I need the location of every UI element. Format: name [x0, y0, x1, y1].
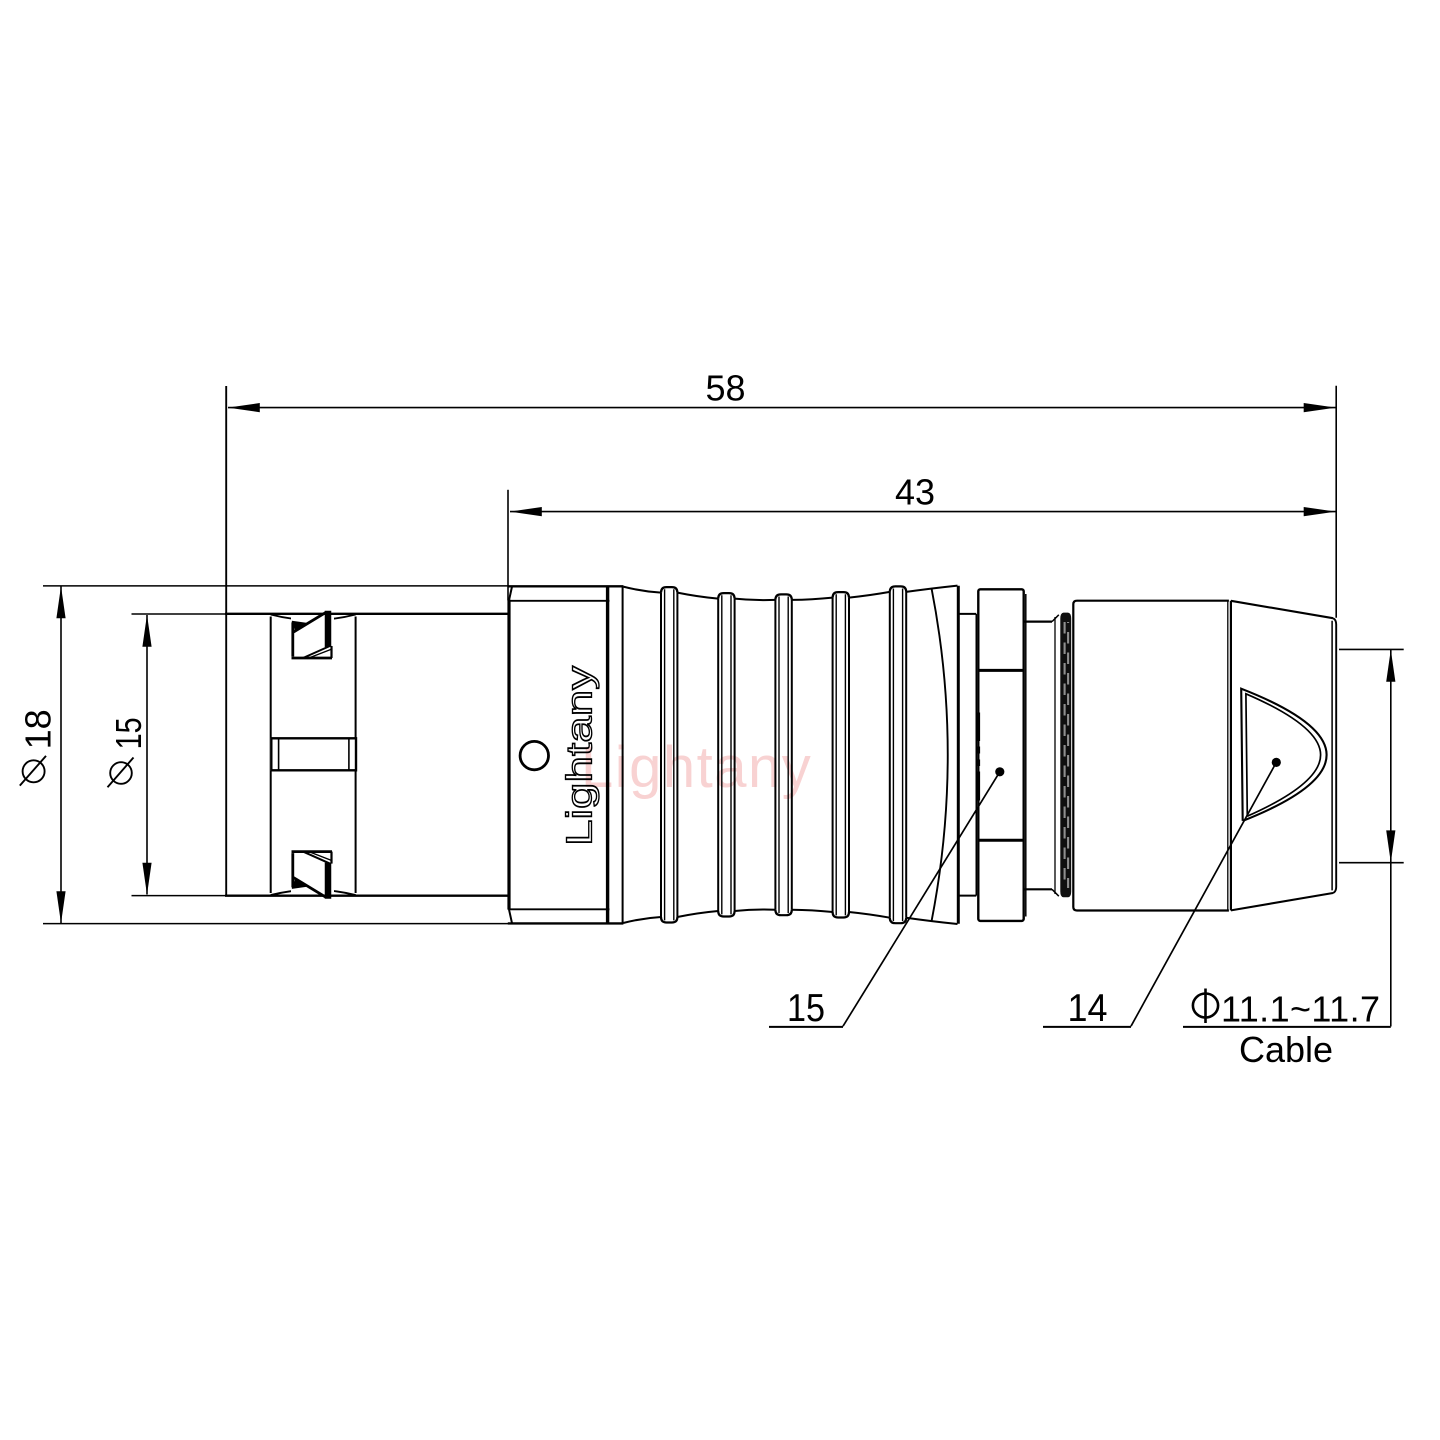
svg-text:11.1~11.7: 11.1~11.7	[1221, 989, 1380, 1030]
svg-text:Lightany: Lightany	[581, 735, 812, 800]
svg-text:18: 18	[17, 709, 58, 749]
svg-text:15: 15	[787, 987, 825, 1030]
svg-text:14: 14	[1068, 987, 1108, 1030]
svg-text:43: 43	[895, 472, 935, 513]
svg-text:Cable: Cable	[1239, 1029, 1333, 1070]
svg-text:Lightany: Lightany	[559, 666, 600, 846]
svg-text:15: 15	[108, 717, 149, 749]
svg-text:58: 58	[705, 367, 745, 408]
